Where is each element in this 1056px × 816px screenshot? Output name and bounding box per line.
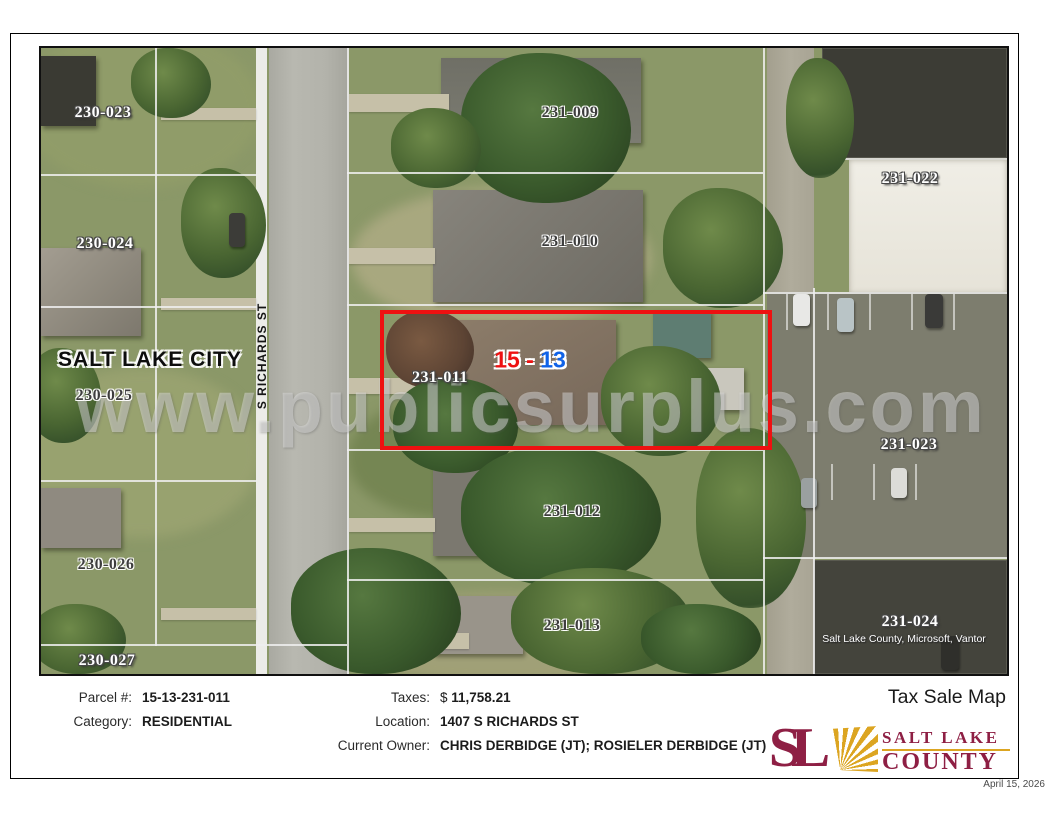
- parking-stripe: [953, 294, 955, 330]
- tree: [391, 108, 481, 188]
- detail-value: 15-13-231-011: [142, 690, 230, 705]
- car: [925, 294, 943, 328]
- detail-label: Category:: [10, 714, 132, 729]
- house-roof: [41, 488, 121, 548]
- sunburst-icon: [832, 726, 878, 772]
- detail-label: Parcel #:: [10, 690, 132, 705]
- parcel-line: [347, 304, 763, 306]
- parcel-label-231-013: 231-013: [544, 617, 601, 635]
- tree: [663, 188, 783, 308]
- driveway: [349, 248, 435, 264]
- logo-line2: COUNTY: [882, 751, 1010, 774]
- car: [229, 213, 245, 247]
- tax-sale-map-page: { "page": { "date": "April 15, 2026" }, …: [0, 0, 1056, 816]
- parcel-label-230-024: 230-024: [77, 235, 134, 253]
- parcel-line: [155, 48, 157, 646]
- tree: [786, 58, 854, 178]
- detail-value: CHRIS DERBIDGE (JT); ROSIELER DERBIDGE (…: [440, 738, 766, 753]
- detail-row: Taxes:$ 11,758.21: [290, 690, 910, 708]
- parcel-label-231-011: 231-011: [412, 369, 468, 387]
- parcel-line: [347, 172, 763, 174]
- detail-label: Location:: [290, 714, 430, 729]
- detail-value: $ 11,758.21: [440, 690, 511, 705]
- street-name-label: S RICHARDS ST: [255, 303, 269, 409]
- sl-monogram: SL: [769, 716, 820, 780]
- parcel-label-230-025: 230-025: [76, 387, 133, 405]
- tax-sale-number-right: 13: [540, 347, 566, 373]
- logo-line1: SALT LAKE: [882, 728, 1010, 751]
- parcel-label-231-022: 231-022: [882, 170, 939, 188]
- parking-stripe: [873, 464, 875, 500]
- car: [891, 468, 907, 498]
- detail-label: Current Owner:: [290, 738, 430, 753]
- imagery-attribution: Salt Lake County, Microsoft, Vantor: [822, 633, 986, 645]
- parcel-line: [41, 644, 347, 646]
- city-label: SALT LAKE CITY: [58, 348, 242, 372]
- driveway: [349, 518, 435, 532]
- parking-stripe: [869, 294, 871, 330]
- tax-sale-number-label: 15 - 13: [494, 347, 566, 374]
- salt-lake-county-logo: SL SALT LAKE COUNTY: [770, 724, 1010, 776]
- parcel-label-231-023: 231-023: [881, 436, 938, 454]
- map-frame: www.publicsurplus.com SALT LAKE CITY S R…: [39, 46, 1009, 676]
- aerial-map[interactable]: www.publicsurplus.com SALT LAKE CITY S R…: [41, 48, 1007, 674]
- parcel-label-230-026: 230-026: [78, 556, 135, 574]
- walkway: [161, 608, 256, 620]
- tax-sale-number-left: 15 -: [494, 347, 534, 373]
- parcel-line: [763, 557, 1007, 559]
- tree: [181, 168, 266, 278]
- parcel-line: [41, 306, 257, 308]
- currency-prefix: $: [440, 690, 451, 705]
- parcel-label-231-012: 231-012: [544, 503, 601, 521]
- tree: [461, 53, 631, 203]
- parcel-label-231-009: 231-009: [542, 104, 599, 122]
- parcel-line: [763, 292, 1007, 294]
- tree: [696, 428, 806, 608]
- detail-row: Category:RESIDENTIAL: [10, 714, 310, 732]
- parcel-line: [813, 288, 815, 674]
- tree: [131, 48, 211, 118]
- parcel-line: [41, 480, 257, 482]
- parcel-label-231-010: 231-010: [542, 233, 599, 251]
- document-title: Tax Sale Map: [888, 686, 1006, 709]
- house-roof: [41, 248, 141, 336]
- parking-stripe: [915, 464, 917, 500]
- parking-stripe: [786, 294, 788, 330]
- logo-wordmark: SALT LAKE COUNTY: [882, 728, 1010, 774]
- tree: [641, 604, 761, 674]
- parcel-label-230-027: 230-027: [79, 652, 136, 670]
- parcel-label-230-023: 230-023: [75, 104, 132, 122]
- detail-label: Taxes:: [290, 690, 430, 705]
- detail-row: Parcel #:15-13-231-011: [10, 690, 310, 708]
- document-date: April 15, 2026: [983, 779, 1045, 790]
- car: [793, 294, 810, 326]
- walkway: [161, 298, 256, 310]
- parking-stripe: [827, 294, 829, 330]
- parcel-line: [41, 174, 257, 176]
- house-roof-231-010: [433, 190, 643, 302]
- parking-stripe: [831, 464, 833, 500]
- parcel-line: [347, 579, 763, 581]
- car: [837, 298, 854, 332]
- tree: [291, 548, 461, 674]
- parcel-label-231-024: 231-024: [882, 613, 939, 631]
- detail-value: 1407 S RICHARDS ST: [440, 714, 579, 729]
- detail-value: RESIDENTIAL: [142, 714, 232, 729]
- parking-stripe: [911, 294, 913, 330]
